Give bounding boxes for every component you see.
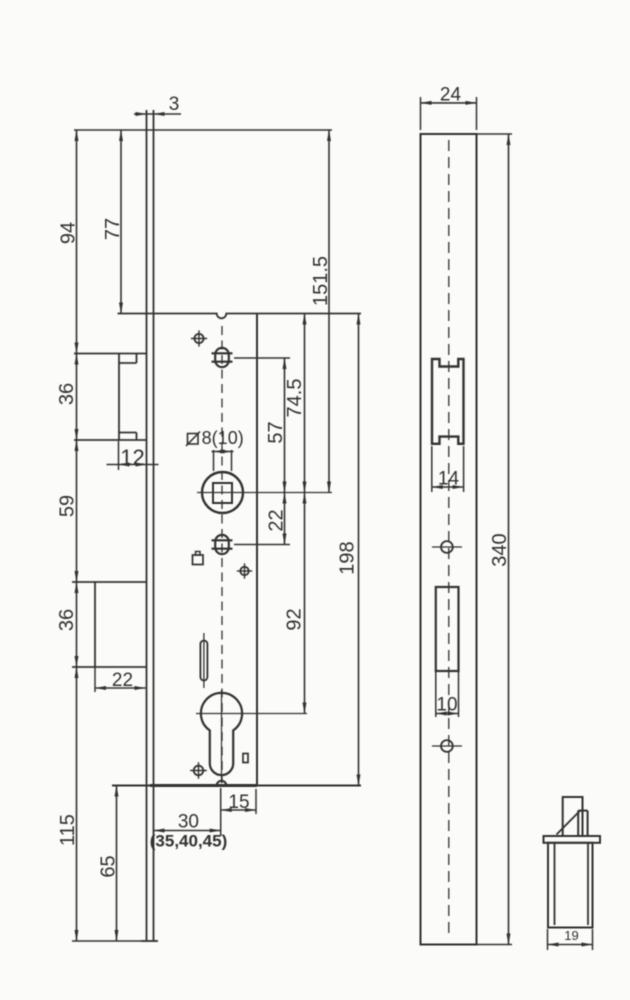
svg-text:24: 24 xyxy=(440,85,462,106)
svg-text:30: 30 xyxy=(178,812,199,833)
svg-text:(35,40,45): (35,40,45) xyxy=(150,832,228,851)
svg-text:15: 15 xyxy=(228,792,249,813)
svg-text:94: 94 xyxy=(58,222,80,244)
svg-text:14: 14 xyxy=(438,469,460,490)
svg-text:22: 22 xyxy=(112,670,133,691)
svg-text:57: 57 xyxy=(265,421,287,443)
svg-text:12: 12 xyxy=(120,445,144,470)
svg-text:74.5: 74.5 xyxy=(284,379,306,418)
svg-text:36: 36 xyxy=(56,383,78,405)
svg-text:65: 65 xyxy=(98,855,120,877)
svg-text:92: 92 xyxy=(284,608,306,630)
svg-text:22: 22 xyxy=(266,509,288,531)
svg-text:151.5: 151.5 xyxy=(310,256,332,306)
svg-text:8(10): 8(10) xyxy=(202,428,244,448)
svg-text:10: 10 xyxy=(436,695,457,716)
svg-text:19: 19 xyxy=(564,928,578,943)
svg-text:340: 340 xyxy=(489,533,511,566)
svg-text:3: 3 xyxy=(169,94,180,115)
svg-text:77: 77 xyxy=(102,218,124,240)
svg-text:36: 36 xyxy=(56,609,78,631)
svg-text:198: 198 xyxy=(337,541,359,574)
svg-text:115: 115 xyxy=(57,814,79,846)
svg-text:59: 59 xyxy=(57,495,79,517)
